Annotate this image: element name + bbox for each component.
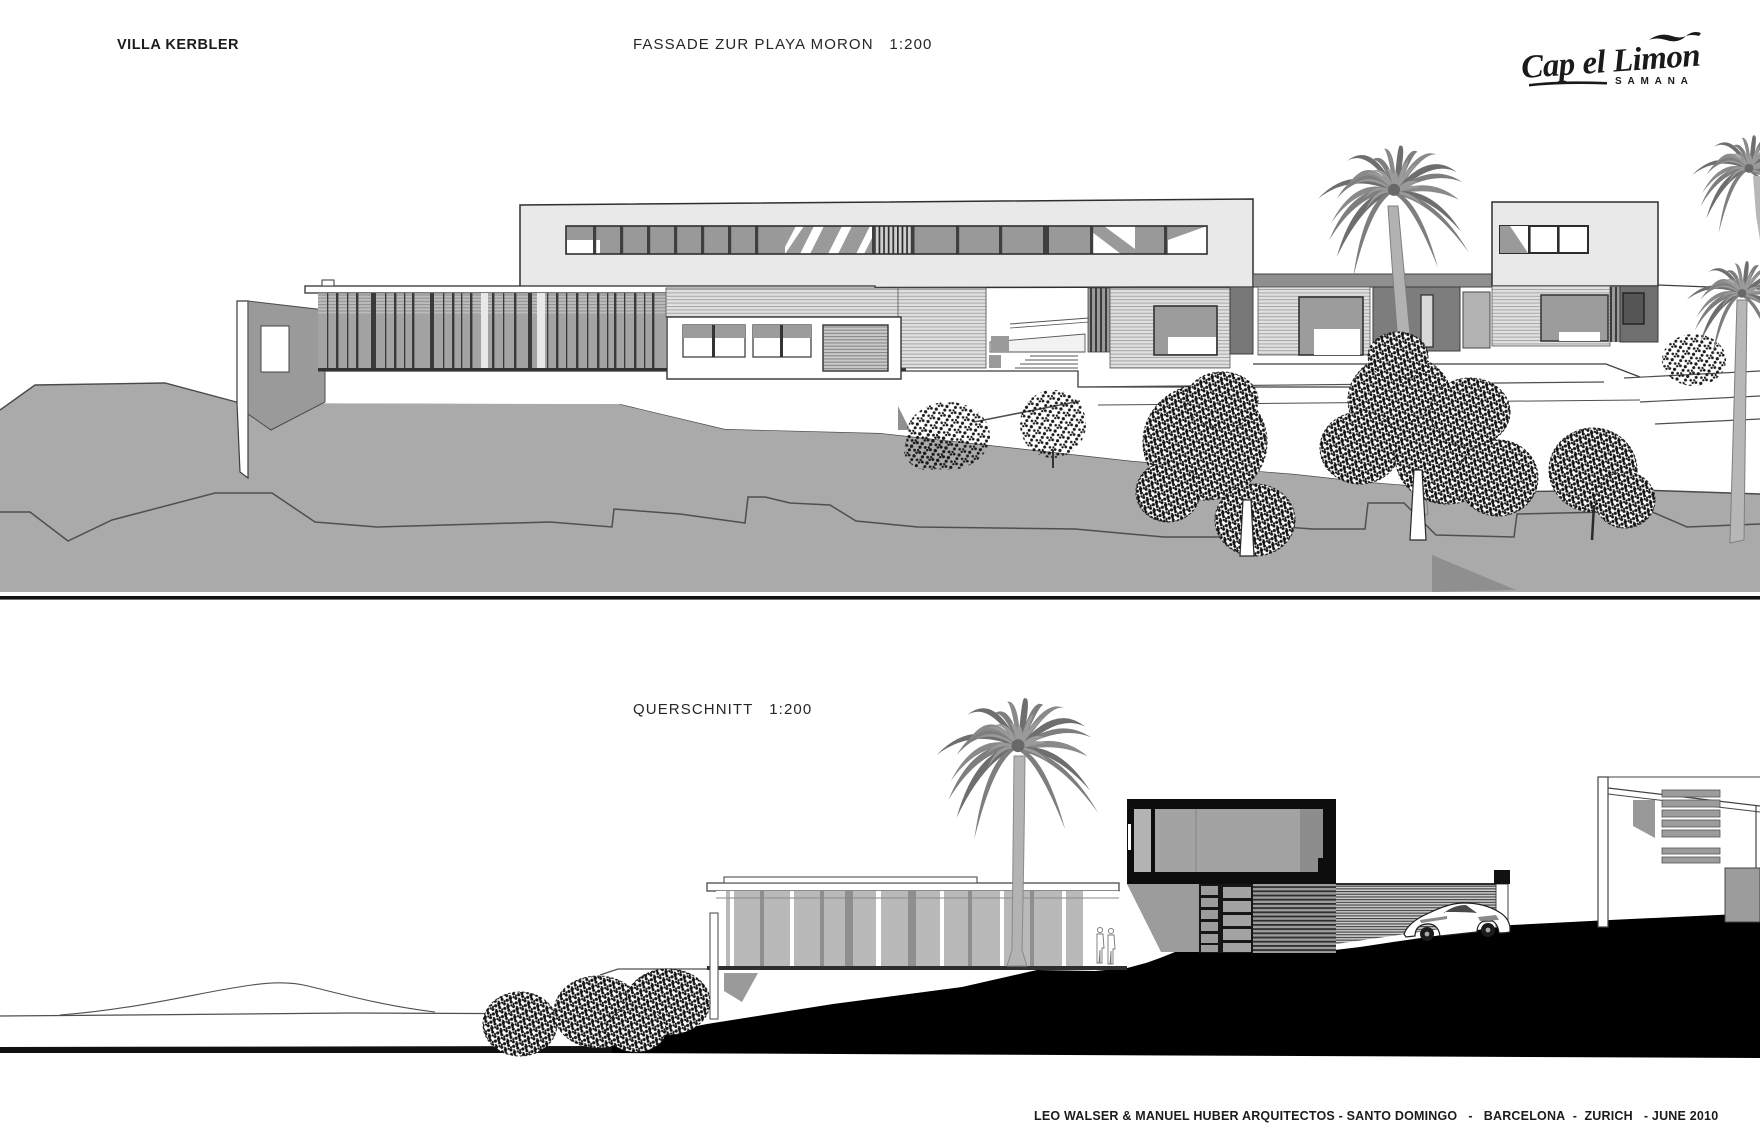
svg-text:SAMANA: SAMANA bbox=[1615, 76, 1694, 87]
